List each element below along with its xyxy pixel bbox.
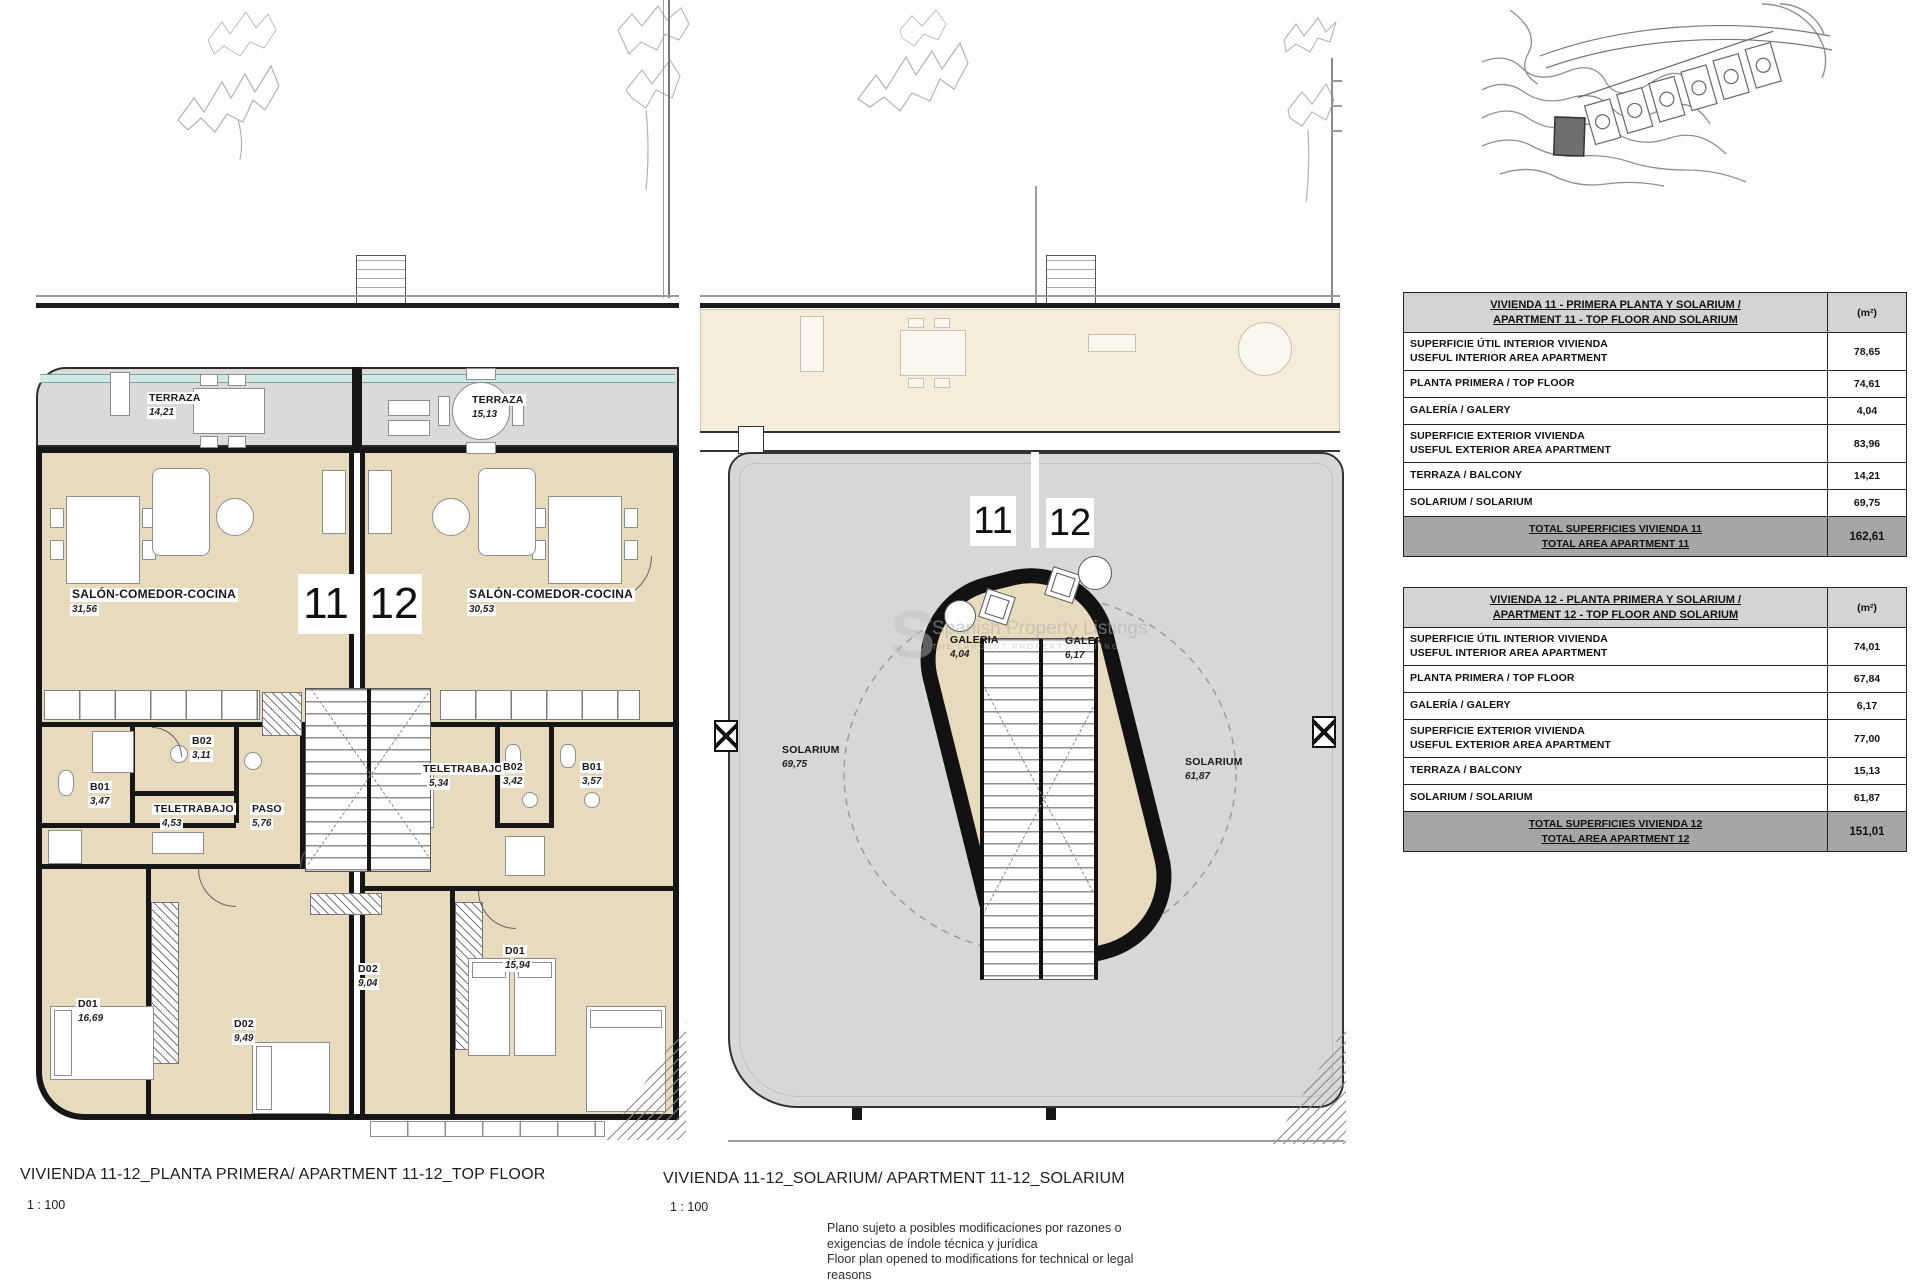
area-table-apartment-11: VIVIENDA 11 - PRIMERA PLANTA Y SOLARIUM …: [1403, 292, 1907, 557]
disclaimer: Plano sujeto a posibles modificaciones p…: [827, 1221, 1133, 1280]
room-label-paso-11: PASO 5,76: [250, 799, 284, 830]
sofa: [152, 468, 210, 556]
room-label-galeria-11: GALERIA 4,04: [948, 630, 1001, 661]
pillow: [472, 962, 506, 978]
ground-line: [728, 1140, 1344, 1142]
room-label-d01-11: D01 16,69: [76, 994, 105, 1025]
table-title: VIVIENDA 12 - PLANTA PRIMERA Y SOLARIUM …: [1404, 588, 1828, 628]
chair: [228, 436, 246, 448]
plan1-scale: 1 : 100: [27, 1198, 65, 1212]
wardrobe: [151, 902, 179, 1064]
chair: [50, 508, 64, 528]
floorplan-sheet: TERRAZA 14,21 TERRAZA 15,13 SALÓN-COMEDO…: [0, 0, 1920, 1280]
row-value: 4,04: [1828, 398, 1907, 425]
faded-chair: [908, 318, 924, 328]
row-label: SUPERFICIE EXTERIOR VIVIENDAUSEFUL EXTER…: [1404, 720, 1828, 758]
unit-number-12: 12: [366, 574, 422, 634]
drain-box: [1312, 716, 1336, 748]
unit-header: (m²): [1828, 293, 1907, 333]
room-label-solarium-12: SOLARIUM 61,87: [1183, 752, 1245, 783]
boundary-tick: [1331, 130, 1342, 132]
row-value: 61,87: [1828, 785, 1907, 812]
room-label-solarium-11: SOLARIUM 69,75: [780, 740, 842, 771]
unit-number-11: 11: [298, 574, 354, 634]
bed: [514, 958, 556, 1056]
row-label: TERRAZA / BALCONY: [1404, 463, 1828, 490]
row-label: SUPERFICIE ÚTIL INTERIOR VIVIENDAUSEFUL …: [1404, 333, 1828, 371]
row-label: SUPERFICIE EXTERIOR VIVIENDAUSEFUL EXTER…: [1404, 425, 1828, 463]
highlighted-plot: [1554, 117, 1585, 156]
room-label-b02-11: B02 3,11: [190, 731, 214, 762]
row-value: 14,21: [1828, 463, 1907, 490]
boundary-line: [1035, 186, 1037, 308]
row-value: 69,75: [1828, 490, 1907, 517]
bed: [252, 1042, 330, 1114]
wall: [549, 727, 554, 827]
faded-sideboard: [800, 316, 824, 372]
plan2-scale: 1 : 100: [670, 1200, 708, 1214]
railing-gate: [738, 426, 764, 454]
kitchen-counter: [44, 690, 260, 720]
stair-bulkhead: [356, 255, 406, 307]
row-value: 83,96: [1828, 425, 1907, 463]
toilet: [58, 770, 74, 796]
deck-party-gap: [1031, 452, 1039, 548]
tree-sketch: [168, 0, 328, 165]
table-title: VIVIENDA 11 - PRIMERA PLANTA Y SOLARIUM …: [1404, 293, 1828, 333]
kitchen-counter: [440, 690, 640, 720]
unit-number-12: 12: [1046, 498, 1094, 548]
boundary-line: [1331, 58, 1333, 308]
boundary-tick: [1331, 80, 1342, 82]
sink: [244, 752, 262, 770]
pillow: [54, 1010, 72, 1076]
unit-number-11: 11: [970, 496, 1016, 546]
tv-unit: [368, 470, 392, 534]
pillow: [256, 1046, 272, 1110]
skylight-circle: [1078, 556, 1112, 590]
chair: [200, 436, 218, 448]
party-wall: [352, 367, 362, 447]
planter-strip: [370, 1121, 605, 1137]
wall: [365, 886, 678, 891]
shower: [92, 731, 134, 773]
room-label-b01-11: B01 3,47: [88, 777, 112, 808]
faded-floor-below: [700, 309, 1340, 433]
terrace-railing: [40, 374, 354, 383]
unit-header: (m²): [1828, 588, 1907, 628]
tree-sketch: [850, 4, 1010, 134]
row-label: GALERÍA / GALERY: [1404, 398, 1828, 425]
sink: [584, 792, 600, 808]
desk: [152, 832, 204, 854]
terrace-table: [193, 388, 265, 434]
room-label-teletrabajo-12: TELETRABAJO 5,34: [421, 759, 505, 790]
total-value: 151,01: [1828, 812, 1907, 852]
area-table-apartment-12: VIVIENDA 12 - PLANTA PRIMERA Y SOLARIUM …: [1403, 587, 1907, 852]
tv-unit: [322, 470, 346, 534]
chair: [438, 396, 450, 426]
sideboard: [110, 372, 130, 416]
watermark-initial: S: [890, 596, 935, 674]
chair: [200, 374, 218, 386]
faded-round-table: [1238, 322, 1292, 376]
staircase: [305, 688, 431, 872]
plan2-caption: VIVIENDA 11-12_SOLARIUM/ APARTMENT 11-12…: [663, 1170, 1125, 1188]
chair: [624, 508, 638, 528]
room-label-salon-11: SALÓN-COMEDOR-COCINA 31,56: [70, 585, 238, 616]
wardrobe: [310, 893, 382, 915]
boundary-line: [663, 0, 664, 298]
room-label-b01-12: B01 3,57: [580, 757, 604, 788]
lounge-chair: [388, 400, 430, 416]
bed: [468, 958, 510, 1056]
row-label: TERRAZA / BALCONY: [1404, 758, 1828, 785]
staircase: [980, 638, 1098, 980]
sofa: [478, 468, 536, 556]
chair: [50, 540, 64, 560]
row-label: PLANTA PRIMERA / TOP FLOOR: [1404, 666, 1828, 693]
row-label: PLANTA PRIMERA / TOP FLOOR: [1404, 371, 1828, 398]
faded-chair: [934, 318, 950, 328]
row-value: 74,01: [1828, 628, 1907, 666]
row-label: SOLARIUM / SOLARIUM: [1404, 785, 1828, 812]
site-location-map: [1480, 2, 1852, 188]
terrace-railing: [362, 374, 675, 383]
shower: [48, 830, 82, 864]
appliance: [262, 692, 302, 736]
roof-edge: [700, 295, 1340, 297]
roof-edge: [700, 303, 1340, 308]
total-label: TOTAL SUPERFICIES VIVIENDA 11TOTAL AREA …: [1404, 517, 1828, 557]
row-label: GALERÍA / GALERY: [1404, 693, 1828, 720]
roof-edge: [36, 303, 679, 308]
row-value: 6,17: [1828, 693, 1907, 720]
row-value: 15,13: [1828, 758, 1907, 785]
total-value: 162,61: [1828, 517, 1907, 557]
room-label-b02-12: B02 3,42: [501, 757, 525, 788]
stair-bulkhead: [1046, 255, 1096, 307]
room-label-terraza-12: TERRAZA 15,13: [470, 390, 526, 421]
tree-sketch: [606, 0, 696, 195]
plan1-caption: VIVIENDA 11-12_PLANTA PRIMERA/ APARTMENT…: [20, 1166, 545, 1184]
chair: [466, 442, 496, 454]
faded-table: [900, 330, 966, 376]
plant: [432, 498, 470, 536]
row-value: 67,84: [1828, 666, 1907, 693]
lounge-chair: [388, 420, 430, 436]
room-label-teletrabajo-11: TELETRABAJO 4,53: [152, 799, 236, 830]
wall: [495, 823, 554, 828]
room-label-d02-12: D02 9,04: [356, 959, 380, 990]
room-label-d01-12: D01 15,94: [503, 941, 532, 972]
plant: [216, 498, 254, 536]
room-label-terraza-11: TERRAZA 14,21: [147, 388, 203, 419]
faded-chair: [934, 378, 950, 388]
room-label-d02-11: D02 9,49: [232, 1014, 256, 1045]
chair: [228, 374, 246, 386]
sink: [522, 792, 538, 808]
row-value: 78,65: [1828, 333, 1907, 371]
roof-edge: [36, 295, 679, 297]
drain-box: [714, 720, 738, 752]
wall: [130, 791, 236, 796]
boundary-tick: [1331, 105, 1342, 107]
skylight-circle: [944, 600, 976, 632]
boundary-line: [668, 0, 670, 298]
pillow: [590, 1010, 662, 1028]
row-value: 77,00: [1828, 720, 1907, 758]
row-label: SOLARIUM / SOLARIUM: [1404, 490, 1828, 517]
toilet: [560, 744, 576, 768]
solarium-railing: [700, 431, 1340, 452]
chair: [466, 368, 496, 380]
faded-lounge: [1088, 334, 1136, 352]
post: [852, 1108, 862, 1120]
faded-chair: [908, 378, 924, 388]
total-label: TOTAL SUPERFICIES VIVIENDA 12TOTAL AREA …: [1404, 812, 1828, 852]
row-label: SUPERFICIE ÚTIL INTERIOR VIVIENDAUSEFUL …: [1404, 628, 1828, 666]
shower: [505, 836, 545, 876]
post: [1046, 1108, 1056, 1120]
dining-table: [66, 496, 140, 584]
row-value: 74,61: [1828, 371, 1907, 398]
room-label-salon-12: SALÓN-COMEDOR-COCINA 30,53: [467, 585, 635, 616]
room-label-galeria-12: GALERIA 6,17: [1063, 631, 1116, 662]
